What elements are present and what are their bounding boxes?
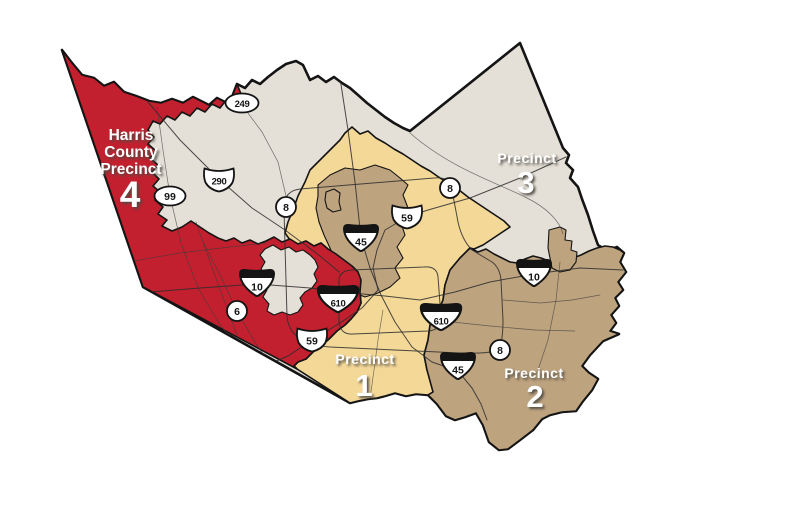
shield-number: 290 [212,177,227,188]
shield-number: 99 [164,191,176,203]
precinct-3-label-number: 3 [517,165,534,200]
harris-county-precinct-map: 249 290 99 8 8 8 6 59 59 45 [0,0,807,517]
precinct-1-label-number: 1 [355,368,372,403]
sh-249-shield: 249 [226,94,259,113]
precinct-1-label-text: Precinct [335,351,394,367]
shield-number: 45 [355,237,367,249]
precinct-2-label-number: 2 [526,379,543,414]
beltway-8-shield-northeast: 8 [440,178,460,198]
shield-number: 610 [434,317,449,328]
shield-number: 10 [251,282,263,294]
shield-number: 8 [283,202,289,214]
shield-number: 610 [331,299,346,310]
shield-number: 6 [234,306,240,318]
shield-number: 8 [447,183,453,195]
precinct-3-label-text: Precinct [497,150,556,166]
sh-99-shield: 99 [155,187,186,206]
shield-number: 10 [528,272,540,284]
beltway-8-shield-west: 8 [276,197,296,217]
precinct-4-label-line1: Harris [109,127,154,144]
precinct-4-label-line2: County [104,144,158,161]
precinct-4-label-number: 4 [120,174,141,215]
sh-6-shield: 6 [227,301,247,321]
shield-number: 59 [401,213,413,225]
beltway-8-shield-south: 8 [490,340,510,360]
shield-number: 45 [452,365,464,377]
shield-number: 8 [497,345,503,357]
tan-patch-west [325,189,341,212]
map-canvas: 249 290 99 8 8 8 6 59 59 45 [0,0,807,517]
shield-number: 249 [235,99,250,110]
shield-number: 59 [306,336,318,348]
